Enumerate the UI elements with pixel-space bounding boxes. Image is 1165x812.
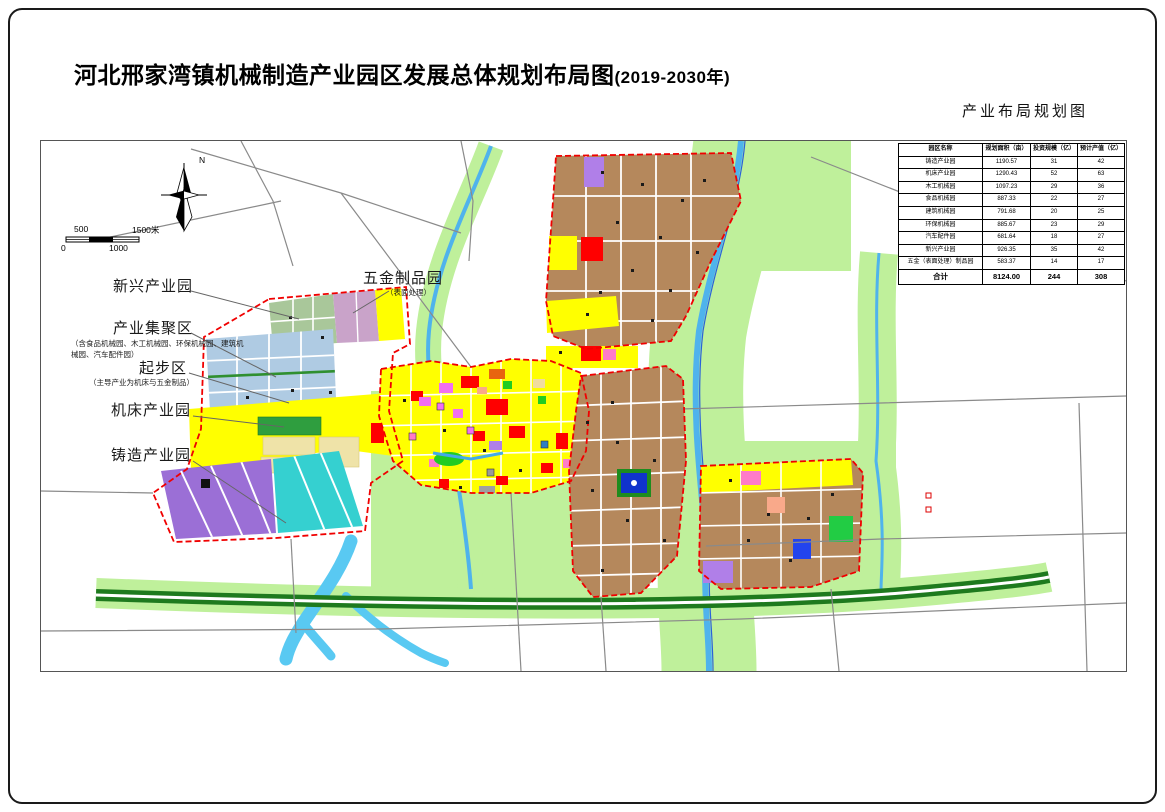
callout-wujin-park: 五金制品园 bbox=[363, 267, 443, 288]
table-row: 环保机械园885.672329 bbox=[899, 219, 1125, 232]
scale-label-0: 0 bbox=[61, 243, 66, 253]
callout-xinxing-park: 新兴产业园 bbox=[113, 275, 193, 296]
page-title: 河北邢家湾镇机械制造产业园区发展总体规划布局图(2019-2030年) bbox=[74, 56, 730, 90]
callout-startup-area: 起步区 bbox=[139, 357, 187, 378]
compass-north-label: N bbox=[199, 155, 205, 165]
table-total-row: 合计8124.00244308 bbox=[899, 269, 1125, 284]
table-row: 铸造产业园1190.573142 bbox=[899, 156, 1125, 169]
table-row: 机床产业园1290.435263 bbox=[899, 169, 1125, 182]
title-text: 河北邢家湾镇机械制造产业园区发展总体规划布局图 bbox=[74, 62, 615, 88]
park-statistics-table: 园区名称 规划面积（亩） 投资规模（亿） 预计产值（亿） 铸造产业园1190.5… bbox=[898, 143, 1125, 285]
table-row: 新兴产业园926.353542 bbox=[899, 244, 1125, 257]
col-park-name: 园区名称 bbox=[899, 144, 983, 157]
callout-jichuang-park: 机床产业园 bbox=[111, 399, 191, 420]
title-years: (2019-2030年) bbox=[615, 68, 731, 87]
table-row: 五金（表面处理）制品园583.371417 bbox=[899, 257, 1125, 270]
legend: 图 例 一类居住用地 二类居住用地 行政办公用地 文化设施用地 教育科研用地 ◆… bbox=[0, 660, 1165, 780]
callout-industry-cluster: 产业集聚区 bbox=[113, 317, 193, 338]
table-row: 汽车配件园681.641827 bbox=[899, 232, 1125, 245]
scale-label-500: 500 bbox=[74, 224, 88, 234]
table-row: 食品机械园887.332227 bbox=[899, 194, 1125, 207]
callout-startup-area-sub: （主导产业为机床与五金制品） bbox=[89, 377, 194, 388]
col-output: 预计产值（亿） bbox=[1078, 144, 1125, 157]
scale-label-1000: 1000 bbox=[109, 243, 128, 253]
map-canvas: N 500 1500米 0 1000 新兴产业园 五金制品园 （表面处理） 产业… bbox=[40, 140, 1127, 672]
compass-rose bbox=[161, 163, 207, 231]
callout-zhuzao-park: 铸造产业园 bbox=[111, 444, 191, 465]
callout-wujin-sub: （表面处理） bbox=[386, 287, 431, 298]
scale-label-1500: 1500米 bbox=[132, 224, 159, 236]
table-row: 木工机械园1097.232936 bbox=[899, 181, 1125, 194]
table-header-row: 园区名称 规划面积（亩） 投资规模（亿） 预计产值（亿） bbox=[899, 144, 1125, 157]
planning-sheet: 河北邢家湾镇机械制造产业园区发展总体规划布局图(2019-2030年) 产业布局… bbox=[0, 0, 1165, 812]
southeast-industrial-cluster bbox=[696, 456, 866, 591]
table-row: 建筑机械园791.682025 bbox=[899, 206, 1125, 219]
col-area: 规划面积（亩） bbox=[983, 144, 1031, 157]
col-investment: 投资规模（亿） bbox=[1031, 144, 1078, 157]
page-subtitle: 产业布局规划图 bbox=[962, 100, 1088, 121]
scale-bar bbox=[66, 237, 139, 242]
